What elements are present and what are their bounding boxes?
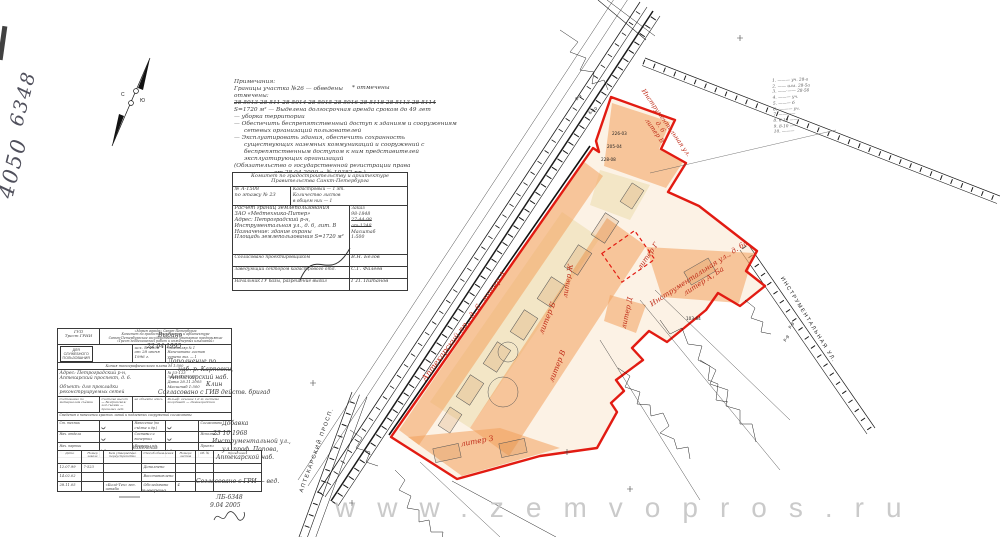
changes-cell: 28.11.05	[58, 482, 82, 492]
changes-title: Изменения	[100, 445, 190, 450]
signature	[168, 421, 182, 426]
kga-sig2-name: С.Г. Фалеев	[349, 266, 407, 278]
signature	[102, 432, 116, 437]
changes-header: Кем утверждено переустройство	[104, 451, 142, 464]
top-notes-line3: отмечены:	[234, 93, 457, 100]
note-agreed-2: Согласовано с ГРИ — вед.	[196, 478, 279, 485]
note-issue: Выдано	[158, 332, 182, 339]
scan-smudge	[0, 26, 7, 60]
grii-address-line2: Аптекарский проспект, д. 6.	[60, 376, 164, 381]
changes-cell	[196, 464, 214, 473]
kga-doc-number2: по этажу № 23	[235, 193, 289, 199]
grii-out-date: от 28 июня 1996 г.	[135, 350, 164, 359]
compass-north-letter: С	[121, 92, 125, 98]
grii-redlines-note: Сведения о нанесении красных линий и под…	[58, 412, 232, 420]
grii-sig-role: Составил и вычертил	[133, 431, 166, 442]
note-addition-date: 23 10 1968	[213, 430, 247, 437]
changes-cell	[104, 464, 142, 473]
changes-cell	[82, 482, 104, 492]
changes-header: Дата	[58, 451, 82, 464]
grii-sig-role: Нач. партии	[58, 443, 100, 451]
grii-sig-role: Нанесение (по съёмке и др.)	[133, 420, 166, 431]
changes-cell: 14.02.02	[58, 473, 82, 482]
top-notes-line9: — Эксплуатировать здания, обеспечить сох…	[234, 135, 457, 142]
top-notes-line12: эксплуатирующих организаций	[234, 156, 457, 163]
note-street-0: Инструментальной ул.,	[212, 438, 291, 445]
grii-meta-cell: на объекте здесь	[133, 397, 166, 413]
changes-cell: 4	[176, 482, 196, 492]
top-notes-asterisk: * отмечены	[352, 85, 390, 91]
changes-cell	[176, 473, 196, 482]
grii-org-short2: Трест ГРИИ	[60, 334, 98, 339]
changes-header: Номер заказа	[82, 451, 104, 464]
note-street-2: Аптекарской наб.	[216, 454, 274, 461]
note-issue-date: 22 04 1995	[147, 343, 181, 350]
grii-meta-cell: Система высот — Балтийская; год съёмки —…	[100, 397, 133, 413]
changes-header: Об. №	[196, 451, 214, 464]
note-street-1: ул. проф. Попова,	[222, 446, 278, 453]
grii-dsp-line: ПОЛЬЗОВАНИЯ	[63, 356, 90, 360]
micro-label-226-03: 226-03	[612, 131, 627, 136]
note-checked: выверено	[141, 488, 166, 494]
grii-purpose: Объект: для прокладки реконструируемых с…	[60, 385, 164, 396]
micro-label-228-08: 228-08	[601, 157, 616, 162]
top-notes-line13: (Обязательство о государственной регистр…	[234, 163, 457, 170]
top-notes-line11: беспрепятственным доступом к ним предста…	[234, 149, 457, 156]
kga-scale-value: 1:500	[351, 235, 405, 241]
top-notes-line6: — уборка территории	[234, 114, 457, 121]
scanned-cadastral-plan: С Ю Аптекарский пр., д. 6, литер А литер…	[0, 0, 1000, 537]
kga-sig3-name: Г.П. Питанов	[349, 278, 407, 290]
compass-south-letter: Ю	[140, 98, 145, 104]
changes-cell: 7-523	[82, 464, 104, 473]
top-notes-line8: сетевых организаций пользователей	[234, 128, 457, 135]
changes-cell: «Билд-Тех» ген. штаба	[104, 482, 142, 492]
bottom-signature	[212, 508, 246, 526]
kga-cadastre-line3: в общем них — 1	[293, 199, 406, 205]
micro-label-205-04: 205-04	[607, 144, 622, 149]
changes-cell: Дополнено	[142, 464, 176, 473]
changes-cell	[104, 473, 142, 482]
signature	[168, 432, 182, 437]
note-check-dash	[118, 495, 142, 499]
top-notes-line10: существующих наземных коммуникаций и соо…	[234, 142, 457, 149]
top-notes-line5: S=1720 м² — Выделена долгосрочная аренда…	[234, 107, 457, 114]
note-ref-number: ЛБ-6348	[216, 494, 243, 501]
side-list-block: 1. ——— уч. 28-а 2. —— илл. 28-5а 3. ——·—…	[772, 76, 812, 134]
grii-dsp-stamp: ДЛЯ СЛУЖЕБНОГО ПОЛЬЗОВАНИЯ	[60, 346, 93, 362]
note-klin: Клин	[206, 381, 222, 388]
street-right-lines	[740, 244, 875, 434]
kga-sig1-name: В.Н. Белов	[349, 254, 407, 266]
note-addition: Добавка	[222, 420, 248, 427]
note-supplement: Дополнение по	[168, 358, 216, 365]
grii-meta-cell: Рельеф: сечение 1,0 м; система координат…	[166, 397, 232, 413]
grii-meta-cell: Составлено по материалам съёмки	[58, 397, 100, 413]
note-karpovka: наб. р. Карповки,	[178, 366, 233, 373]
note-aptekarsky-nab: Аптекарский наб.	[170, 374, 228, 381]
top-notes-struck-numbers: 28-5013 28-511 28-5014 28-5015 28-5016 2…	[234, 100, 457, 107]
kga-signature-stroke	[295, 240, 355, 285]
watermark-zemvopros: www.zemvopros.ru	[335, 492, 924, 524]
changes-cell: Восстановлено	[142, 473, 176, 482]
micro-label-103-64: 103-64	[686, 316, 701, 321]
grii-sig-role: Нач. отдела	[58, 431, 100, 442]
top-notes-title: Примечания:	[234, 79, 457, 86]
changes-cell	[214, 464, 262, 473]
grii-sig-role: Ст. техник	[58, 420, 100, 431]
changes-cell: 12.07.99	[58, 464, 82, 473]
changes-cell	[82, 473, 104, 482]
signature	[102, 421, 116, 426]
kga-header-line2: Правительства Санкт-Петербурга	[235, 179, 406, 185]
changes-header: Способ обновления	[142, 451, 176, 464]
note-agreed-1: Согласовано с ГИВ действ. бригад	[158, 389, 270, 396]
top-notes-line2: Границы участка №26 — обведены	[234, 86, 457, 93]
top-notes-block: Примечания: Границы участка №26 — обведе…	[234, 79, 457, 177]
top-notes-line7: — Обеспечить беспрепятственный доступ к …	[234, 121, 457, 128]
changes-header: Номера листов	[176, 451, 196, 464]
changes-cell	[176, 464, 196, 473]
